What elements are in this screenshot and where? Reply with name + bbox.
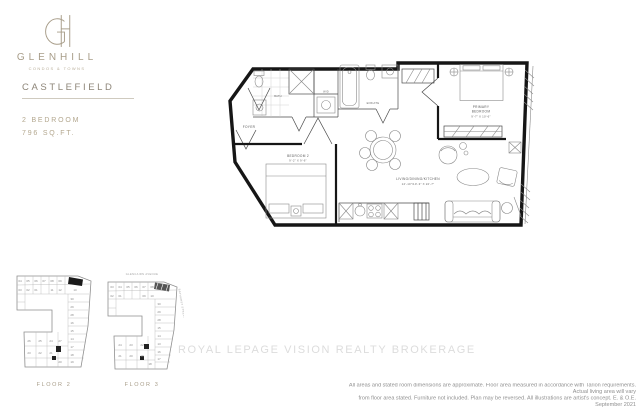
room-label-wd: W/D [323, 90, 329, 94]
unit-number: 03 [18, 288, 22, 292]
unit-number: 14 [157, 334, 161, 338]
unit-number: 19 [140, 354, 144, 358]
sink [355, 206, 365, 216]
street-label-top: GLENCAIRN AVENUE [126, 272, 159, 276]
room-label-bath: BATH [274, 94, 282, 98]
unit-number: 06 [34, 279, 38, 283]
unit-number: 02 [110, 294, 114, 298]
unit-number: 29 [70, 305, 74, 309]
highlighted-unit [68, 277, 83, 286]
primary-bedroom-walls [422, 63, 506, 139]
unit-number: 19 [70, 360, 74, 364]
washer-dryer [317, 97, 335, 113]
unit-number: 07 [42, 279, 46, 283]
unit-number: 18 [70, 353, 74, 357]
disclaimer: All areas and stated room dimensions are… [332, 383, 636, 409]
keyplan2-caption: FLOOR 2 [12, 382, 96, 388]
unit-number: 28 [70, 313, 74, 317]
unit-number: 04 [118, 285, 122, 289]
floor-lamp [514, 197, 521, 216]
accent-table [460, 143, 467, 150]
unit-number: 23 [129, 343, 133, 347]
unit-number: 17 [70, 345, 74, 349]
room-label-living: LIVING/DINING/KITCHEN [396, 177, 440, 181]
brand-block: GLENHILL CONDOS & TOWNS [14, 14, 100, 71]
unit-area: 796 SQ.FT. [22, 130, 172, 137]
unit-number: 13 [157, 342, 161, 346]
chair [366, 131, 377, 142]
bathroom: BATH [253, 69, 338, 131]
armchair [497, 167, 518, 186]
unit-number: 15 [70, 329, 74, 333]
unit-number: 12 [58, 288, 62, 292]
unit-number: 02 [26, 288, 30, 292]
unit-number: 06 [134, 285, 138, 289]
ensuite: ENSUITE [338, 65, 398, 123]
chair [390, 131, 401, 142]
unit-number: 09 [142, 294, 146, 298]
street-label-right: BATHURST STREET [177, 288, 184, 319]
unit-number: 08 [150, 285, 154, 289]
rug [457, 169, 489, 186]
fridge [414, 203, 429, 220]
brand-name: GLENHILL [14, 52, 100, 63]
ensuite-door [376, 109, 390, 123]
ensuite-vanity [382, 65, 398, 78]
unit-number: 22 [38, 351, 42, 355]
room-label-primary-2: BEDROOM [472, 110, 491, 114]
unit-number: 01 [118, 294, 122, 298]
unit-number: 07 [142, 285, 146, 289]
laundry-closet: W/D [314, 69, 338, 117]
keyplan-floor-3: GLENCAIRN AVENUE BATHURST STREET [100, 270, 184, 388]
unit-number: 09 [58, 279, 62, 283]
kitchen [339, 203, 429, 222]
unit-number: 15 [157, 326, 161, 330]
unit-number: 08 [50, 279, 54, 283]
room-dims-bedroom2: 9'-2" X 9'-6" [289, 159, 307, 163]
disclaimer-line-1: All areas and stated room dimensions are… [332, 383, 636, 396]
chair [360, 148, 371, 159]
side-table [502, 203, 513, 214]
room-label-foyer: FOYER [243, 125, 256, 129]
unit-number: 16 [70, 321, 74, 325]
dining-area [360, 131, 401, 171]
unit-info: CASTLEFIELD 2 BEDROOM 796 SQ.FT. [22, 82, 172, 137]
unit-number: 01 [34, 288, 38, 292]
primary-bedroom-door [422, 78, 438, 106]
unit-type: 2 BEDROOM [22, 117, 172, 124]
unit-number: 18 [148, 362, 152, 366]
core [52, 356, 56, 360]
unit-number: 22 [140, 343, 144, 347]
foyer: FOYER [236, 88, 270, 149]
bedroom2-nightstand [291, 206, 301, 216]
room-label-ensuite: ENSUITE [367, 101, 380, 105]
brokerage-watermark: ROYAL LEPAGE VISION REALTY BROKERAGE [178, 344, 458, 356]
foyer-closet-door [236, 130, 256, 149]
core [56, 346, 61, 352]
room-label-primary-1: PRIMARY [473, 105, 490, 109]
unit-number: 30 [70, 297, 74, 301]
unit-number: 16 [157, 350, 161, 354]
room-dims-living: 12'-10"/10'-3" X 22'-7" [402, 182, 435, 186]
unit-number: 17 [157, 357, 161, 361]
unit-number: 25 [38, 339, 42, 343]
bedroom2-door [304, 118, 332, 144]
toilet [254, 71, 264, 76]
unit-number: 04 [18, 279, 22, 283]
core [144, 344, 149, 349]
keyplan3-caption: FLOOR 3 [100, 382, 184, 388]
title-divider [22, 98, 134, 99]
unit-number: 21 [49, 351, 53, 355]
living-furniture [439, 143, 521, 223]
unit-number: 24 [49, 339, 53, 343]
unit-title: CASTLEFIELD [22, 82, 172, 93]
unit-number: 14 [70, 337, 74, 341]
unit-number: 20 [58, 360, 62, 364]
unit-number: 20 [129, 354, 133, 358]
unit-number: 03 [110, 285, 114, 289]
unit-number: 10 [150, 294, 154, 298]
room-dims-primary: 9'-7" X 10'-6" [471, 115, 490, 119]
chair [367, 160, 378, 171]
unit-number: 24 [118, 343, 122, 347]
unit-number: 05 [126, 285, 130, 289]
brand-tagline: CONDOS & TOWNS [14, 66, 100, 71]
floorplan-sheet: GLENHILL CONDOS & TOWNS CASTLEFIELD 2 BE… [0, 0, 639, 414]
armchair [439, 146, 457, 164]
unit-number: 26 [27, 339, 31, 343]
disclaimer-line-2: from floor area stated. Furniture not in… [332, 396, 636, 409]
chair [390, 159, 401, 170]
unit-number: 23 [27, 351, 31, 355]
bath-door [292, 117, 306, 131]
unit-number: 21 [118, 354, 122, 358]
bed-2 [266, 164, 326, 218]
keyplan3-unit-numbers: 0304050607080201091030292815141316171824… [110, 285, 161, 366]
unit-number: 27 [58, 339, 62, 343]
bedroom-2: BEDROOM 2 9'-2" X 9'-6" [235, 118, 336, 225]
keyplan-floor-2: 0405060708090302011112103029281615141718… [12, 270, 96, 388]
unit-number: 11 [50, 288, 53, 292]
hall-closet [402, 69, 434, 83]
unit-number: 05 [26, 279, 30, 283]
gh-monogram-icon [41, 14, 73, 48]
main-floorplan: BATH W/D [226, 56, 536, 245]
unit-number: 28 [157, 318, 161, 322]
room-label-bedroom2: BEDROOM 2 [287, 154, 309, 158]
unit-number: 29 [157, 310, 161, 314]
unit-number: 10 [73, 288, 77, 292]
unit-number: 30 [157, 302, 161, 306]
entry-door [248, 88, 270, 110]
